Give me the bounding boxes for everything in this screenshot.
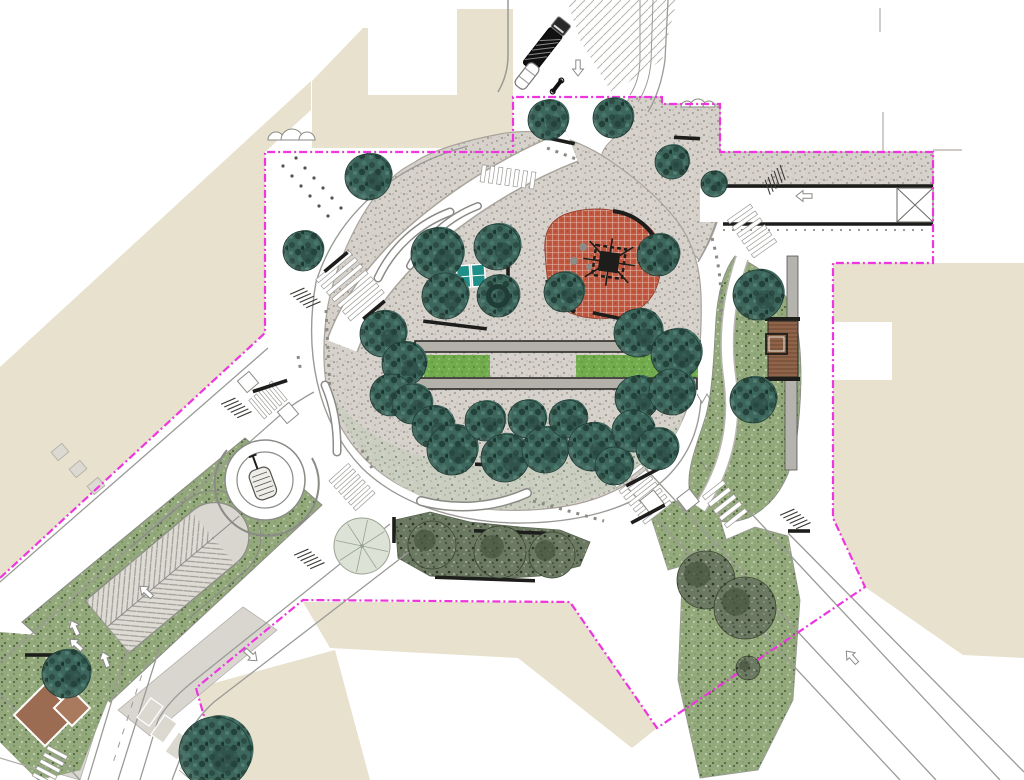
bike-rack-icon [780, 505, 810, 534]
grid-dot [290, 174, 293, 177]
grid-dot [281, 164, 284, 167]
deck-curb-bottom [765, 377, 800, 381]
bench-bar [788, 529, 810, 533]
tree-icon [636, 427, 679, 470]
shrub-mass-icon [408, 521, 456, 569]
deck-curb-top [765, 317, 800, 321]
road-arrow-icon [842, 647, 861, 666]
top-road-hatched-zone [567, 0, 677, 93]
grid-dot [303, 166, 306, 169]
bike-rack-icon [294, 545, 324, 574]
grid-dot [317, 204, 320, 207]
deck-wall-north [787, 256, 798, 318]
grid-dot [330, 196, 333, 199]
building-north-block [312, 9, 513, 148]
shrub-mass-icon [714, 577, 776, 639]
grid-dot [312, 176, 315, 179]
vehicles [513, 16, 571, 95]
east-road [700, 186, 933, 230]
road-arrow-icon [573, 60, 584, 76]
site-plan-canvas [0, 0, 1024, 780]
planting-grid-dots [281, 156, 342, 217]
existing-tree-icon [334, 518, 390, 574]
grid-dot [299, 184, 302, 187]
boulder-dot [570, 257, 578, 265]
boulder-dot [586, 264, 592, 270]
building-east-block [833, 263, 1024, 658]
tree-icon [179, 715, 254, 780]
deck-wall-south [785, 378, 797, 470]
motorcycle-icon [549, 77, 564, 95]
zebra-crossing [329, 463, 375, 510]
grid-dot [294, 156, 297, 159]
bench-bar [392, 517, 396, 543]
grid-dot [339, 206, 342, 209]
lawn-strip-west [424, 355, 490, 377]
shrub-mass-icon [529, 532, 575, 578]
tactile-run-sw-1 [298, 356, 301, 372]
tree-icon [701, 170, 728, 197]
boulder-dot [579, 243, 587, 251]
grid-dot [308, 194, 311, 197]
shrub-mass-icon [736, 656, 760, 680]
car-icon [513, 61, 540, 91]
refuge-box [277, 402, 298, 423]
bike-rack-icon [290, 284, 320, 313]
grid-dot [321, 186, 324, 189]
existing-trees [334, 518, 390, 574]
landscape-masterplan-drawing [0, 0, 1024, 780]
tree-icon [649, 368, 697, 415]
bike-rack-icon [221, 394, 251, 423]
shrub-mass-icon [474, 526, 526, 578]
tree-icon [283, 230, 324, 271]
building-south-band [303, 602, 657, 748]
grid-dot [326, 214, 329, 217]
